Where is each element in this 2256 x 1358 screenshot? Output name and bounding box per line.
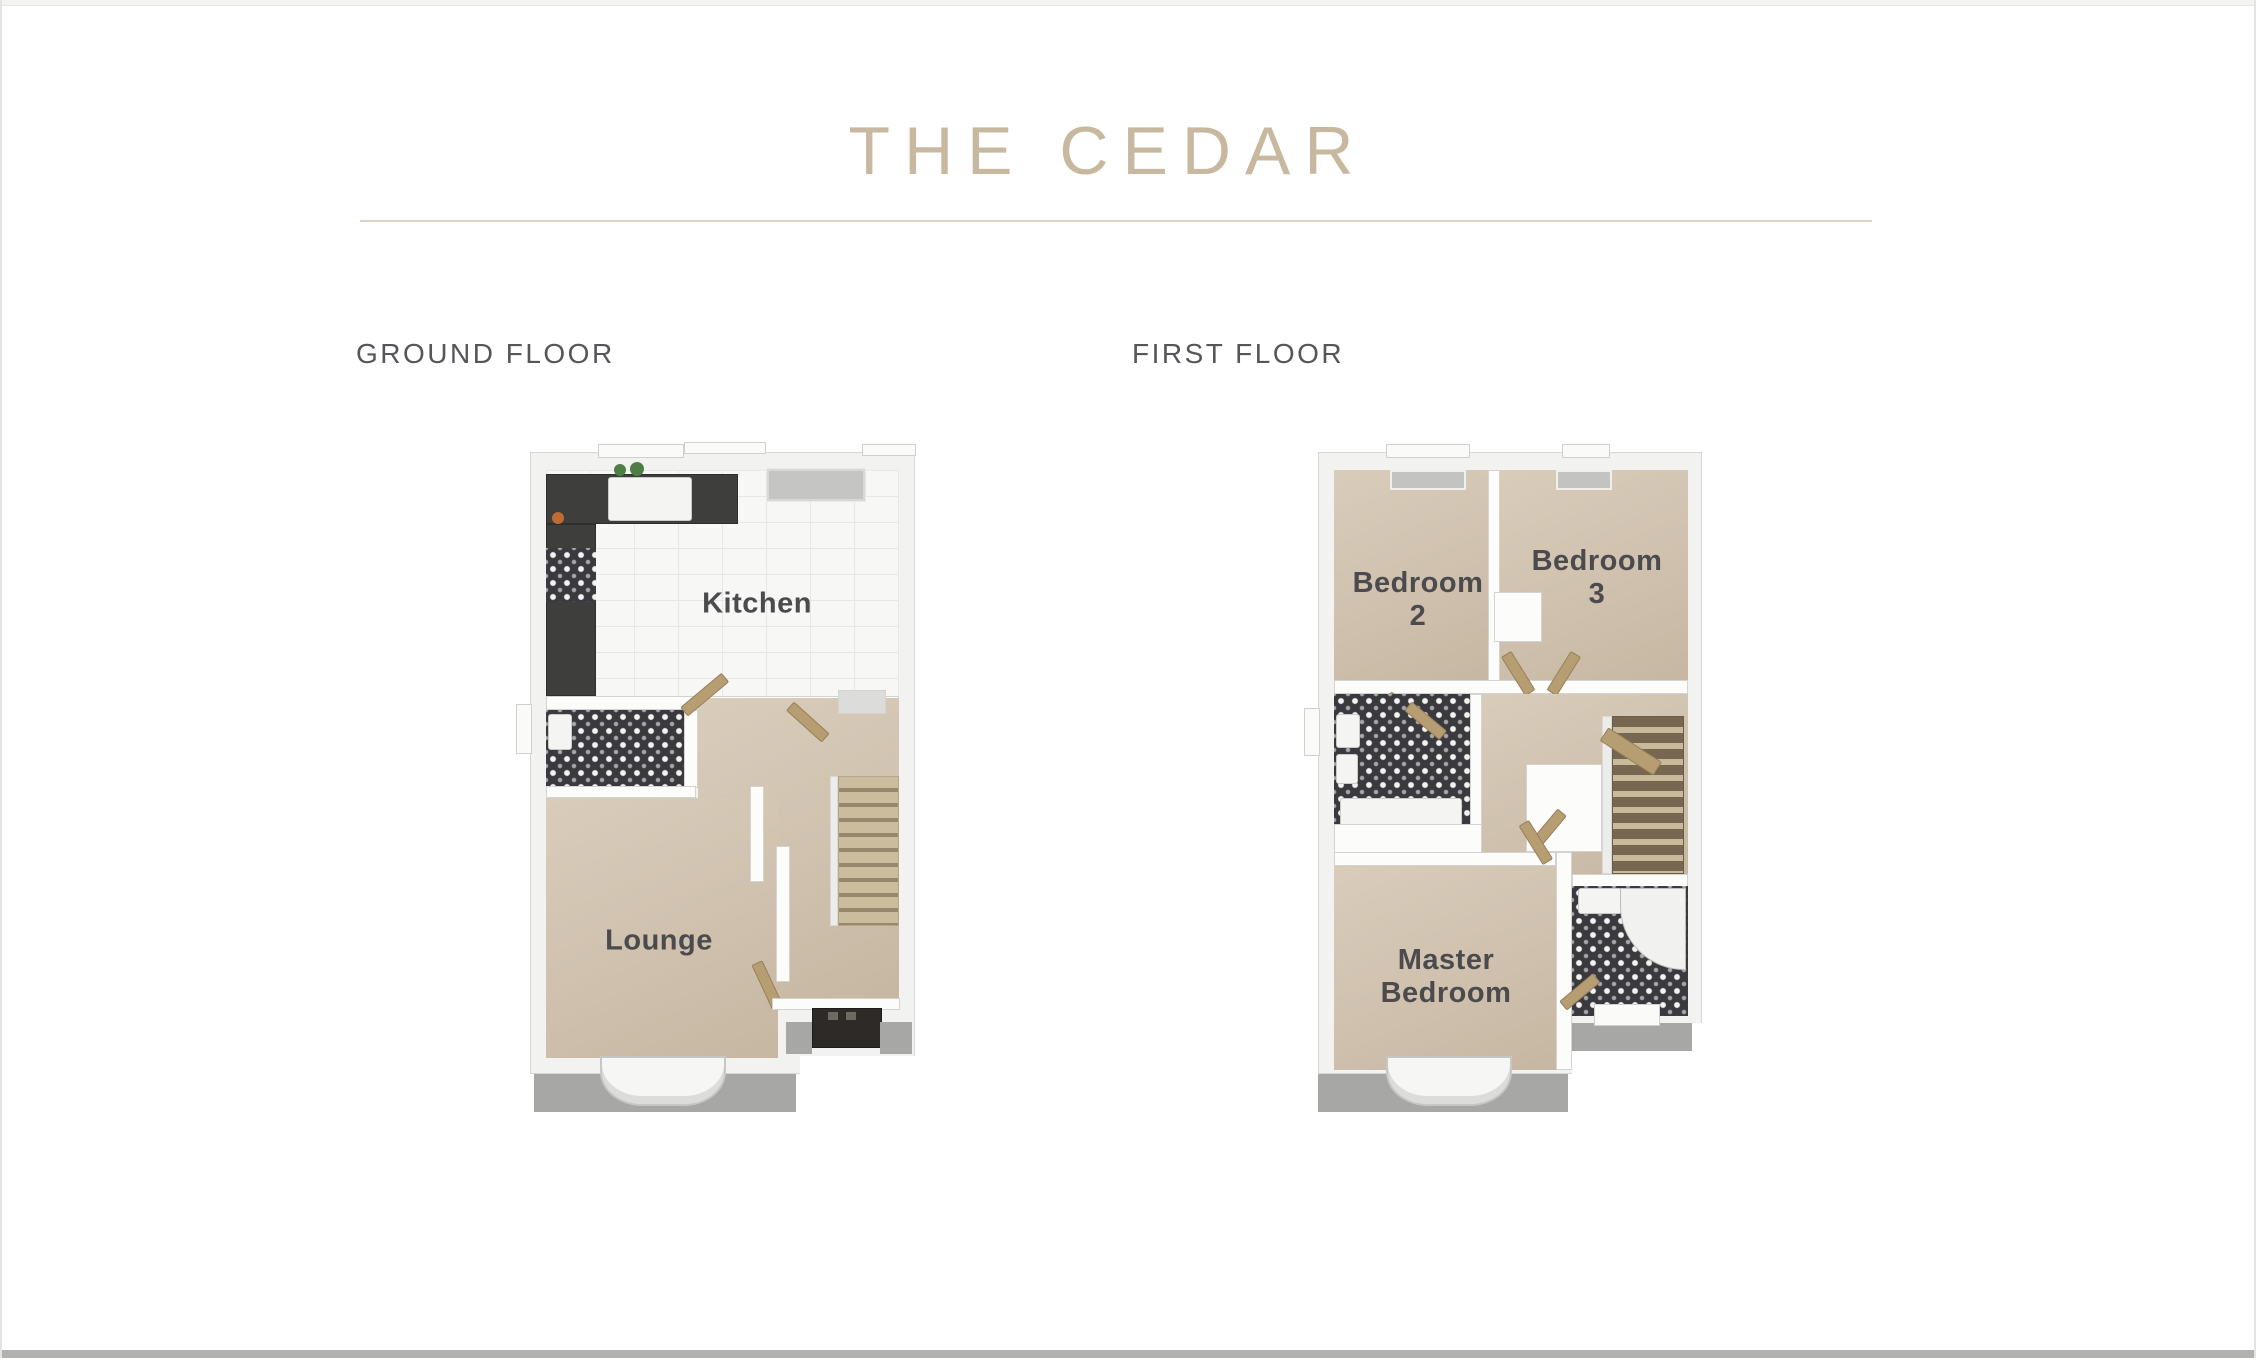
ensuite-window (1594, 1004, 1660, 1026)
page-left-edge (0, 0, 2, 1358)
paving-ensuite (1572, 1023, 1692, 1051)
front-door-panel (828, 1012, 838, 1020)
page-bottom-edge (0, 1350, 2256, 1358)
floorplan-ground: Kitchen Lounge (516, 442, 926, 1122)
title-divider (360, 220, 1872, 222)
bedroom2-label-line2: 2 (1353, 600, 1484, 633)
bay-window-first (1386, 1056, 1512, 1106)
porch-paving-left (786, 1022, 812, 1054)
stairs-stringer (830, 776, 838, 926)
bedroom3-window-tab (1562, 444, 1610, 458)
kitchen-cabinets (766, 468, 866, 502)
building-notch (800, 1056, 917, 1080)
master-bedroom-label: Master Bedroom (1381, 944, 1512, 1010)
bedroom3-label-line1: Bedroom (1532, 545, 1663, 578)
kitchen-window-tab (598, 444, 684, 458)
bathroom-toilet (1336, 714, 1360, 748)
bedroom3-window-sill (1556, 470, 1612, 490)
bathroom-sink (1336, 754, 1358, 784)
entrance-door-tab (516, 704, 532, 754)
wall-wc-lounge (546, 786, 696, 798)
hob-pan-icon (552, 512, 564, 524)
ground-floor-label: GROUND FLOOR (356, 338, 615, 370)
bathroom-window-tab (1304, 708, 1320, 756)
stairs-landing-block (838, 690, 886, 714)
porch-paving-right (880, 1022, 912, 1054)
wc-toilet (548, 714, 572, 750)
bedroom2-window-tab (1386, 444, 1470, 458)
bedroom2-window-sill (1390, 470, 1466, 490)
first-floor-label: FIRST FLOOR (1132, 338, 1344, 370)
wall-master-ensuite (1556, 852, 1572, 1070)
plant-icon (614, 464, 626, 476)
kitchen-splashback-tiles (546, 548, 596, 602)
master-label-line2: Bedroom (1381, 977, 1512, 1010)
wall-bathroom-landing (1470, 694, 1482, 826)
kitchen-label: Kitchen (702, 587, 812, 620)
kitchen-window-tab2 (684, 442, 766, 454)
wall-below-bedrooms (1334, 680, 1688, 694)
wall-wc-hall (684, 710, 698, 788)
stairs-ground (838, 776, 899, 926)
bedroom3-label: Bedroom 3 (1532, 545, 1663, 611)
wall-landing-master (1334, 852, 1556, 866)
page-title: THE CEDAR (628, 112, 1588, 190)
bedroom3-label-line2: 3 (1532, 578, 1663, 611)
bedroom2-label: Bedroom 2 (1353, 567, 1484, 633)
lounge-label: Lounge (605, 924, 713, 957)
wall-hall-stub (750, 786, 764, 882)
floorplan-first: Bedroom 2 Bedroom 3 Master Bedroom (1304, 442, 1714, 1122)
front-door-panel (846, 1012, 856, 1020)
wall-bedroom2-bedroom3 (1488, 470, 1500, 682)
wall-lounge-hall (776, 846, 790, 982)
master-label-line1: Master (1381, 944, 1512, 977)
bedroom2-label-line1: Bedroom (1353, 567, 1484, 600)
bay-window-ground (600, 1056, 726, 1106)
brochure-page: THE CEDAR GROUND FLOOR FIRST FLOOR (0, 0, 2256, 1358)
corner-tab (862, 444, 916, 456)
plant-icon (630, 462, 644, 476)
ensuite-sink (1578, 888, 1622, 914)
kitchen-sink (608, 477, 692, 521)
page-top-edge (0, 0, 2256, 6)
